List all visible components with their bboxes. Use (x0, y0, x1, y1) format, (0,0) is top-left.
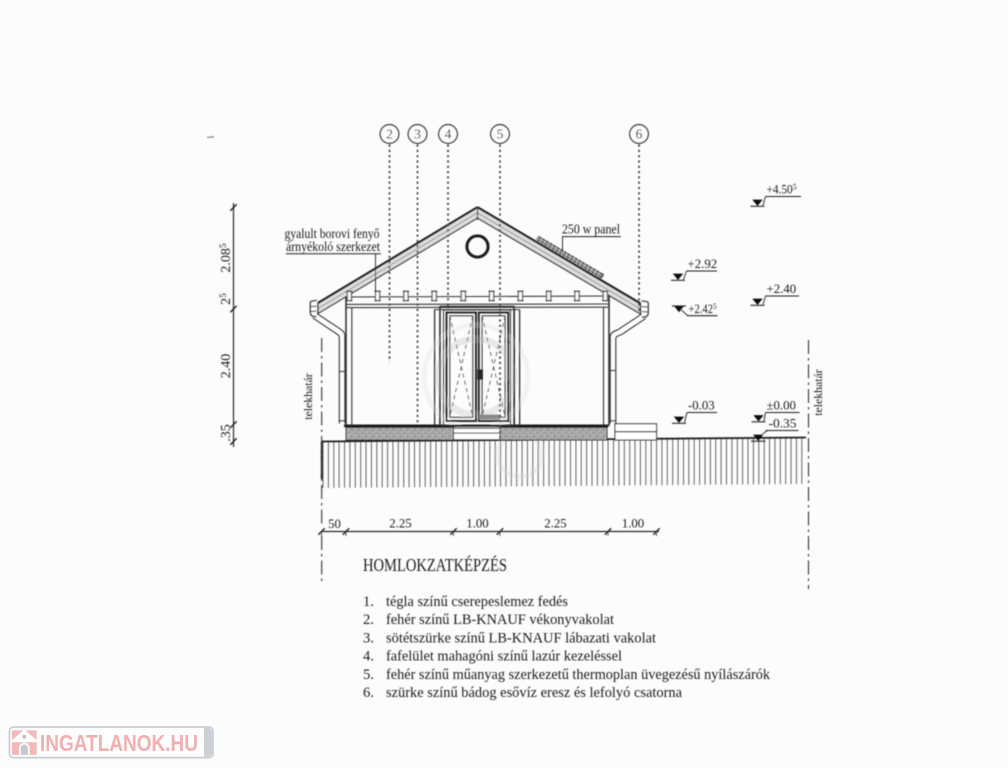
svg-text:HOMLOKZATKÉPZÉS: HOMLOKZATKÉPZÉS (363, 554, 507, 575)
svg-text:5: 5 (497, 127, 504, 142)
svg-text:szürke színű bádog esővíz eres: szürke színű bádog esővíz eresz és lefol… (386, 685, 683, 701)
svg-text:fehér színű LB-KNAUF vékonyvak: fehér színű LB-KNAUF vékonyvakolat (386, 612, 614, 628)
svg-text:-0.03: -0.03 (688, 399, 715, 413)
svg-text:+4.505: +4.505 (767, 182, 797, 197)
svg-text:2.40: 2.40 (219, 354, 234, 379)
svg-text:+2.40: +2.40 (767, 282, 797, 296)
svg-text:4: 4 (445, 127, 452, 142)
svg-text:árnyékoló szerkezet: árnyékoló szerkezet (286, 239, 380, 254)
svg-text:2: 2 (386, 127, 393, 142)
svg-text:2.25: 2.25 (544, 517, 566, 531)
svg-text:1.: 1. (363, 594, 374, 610)
svg-text:+2.92: +2.92 (688, 257, 718, 271)
svg-text:6: 6 (636, 127, 643, 142)
svg-text:telekhatár: telekhatár (301, 373, 315, 420)
svg-text:1.00: 1.00 (622, 517, 644, 531)
svg-text:1.00: 1.00 (466, 517, 488, 531)
svg-text:3.: 3. (363, 630, 374, 646)
svg-text:-0.35: -0.35 (769, 417, 797, 431)
svg-text:250 w panel: 250 w panel (562, 221, 620, 236)
svg-text:INGATLANOK.HU: INGATLANOK.HU (40, 730, 198, 756)
svg-text:fehér színű műanyag szerkezetű: fehér színű műanyag szerkezetű thermopla… (386, 667, 771, 683)
svg-text:5.: 5. (363, 667, 374, 683)
svg-text:±0.00: ±0.00 (767, 399, 796, 413)
svg-text:4.: 4. (363, 649, 374, 665)
svg-text:50: 50 (328, 517, 341, 531)
svg-text:tégla színű cserepeslemez fedé: tégla színű cserepeslemez fedés (386, 594, 568, 610)
svg-text:fafelület mahagóni színű lazúr: fafelület mahagóni színű lazúr kezelésse… (386, 649, 622, 665)
svg-text:2.25: 2.25 (389, 517, 411, 531)
svg-text:3: 3 (414, 127, 421, 142)
svg-text:2.: 2. (363, 612, 374, 628)
svg-text:telekhatár: telekhatár (811, 369, 825, 416)
svg-text:6.: 6. (363, 685, 374, 701)
svg-text:.35: .35 (219, 424, 234, 442)
svg-text:sötétszürke színű LB-KNAUF láb: sötétszürke színű LB-KNAUF lábazati vako… (386, 630, 656, 646)
svg-text:+2.425: +2.425 (689, 301, 717, 316)
